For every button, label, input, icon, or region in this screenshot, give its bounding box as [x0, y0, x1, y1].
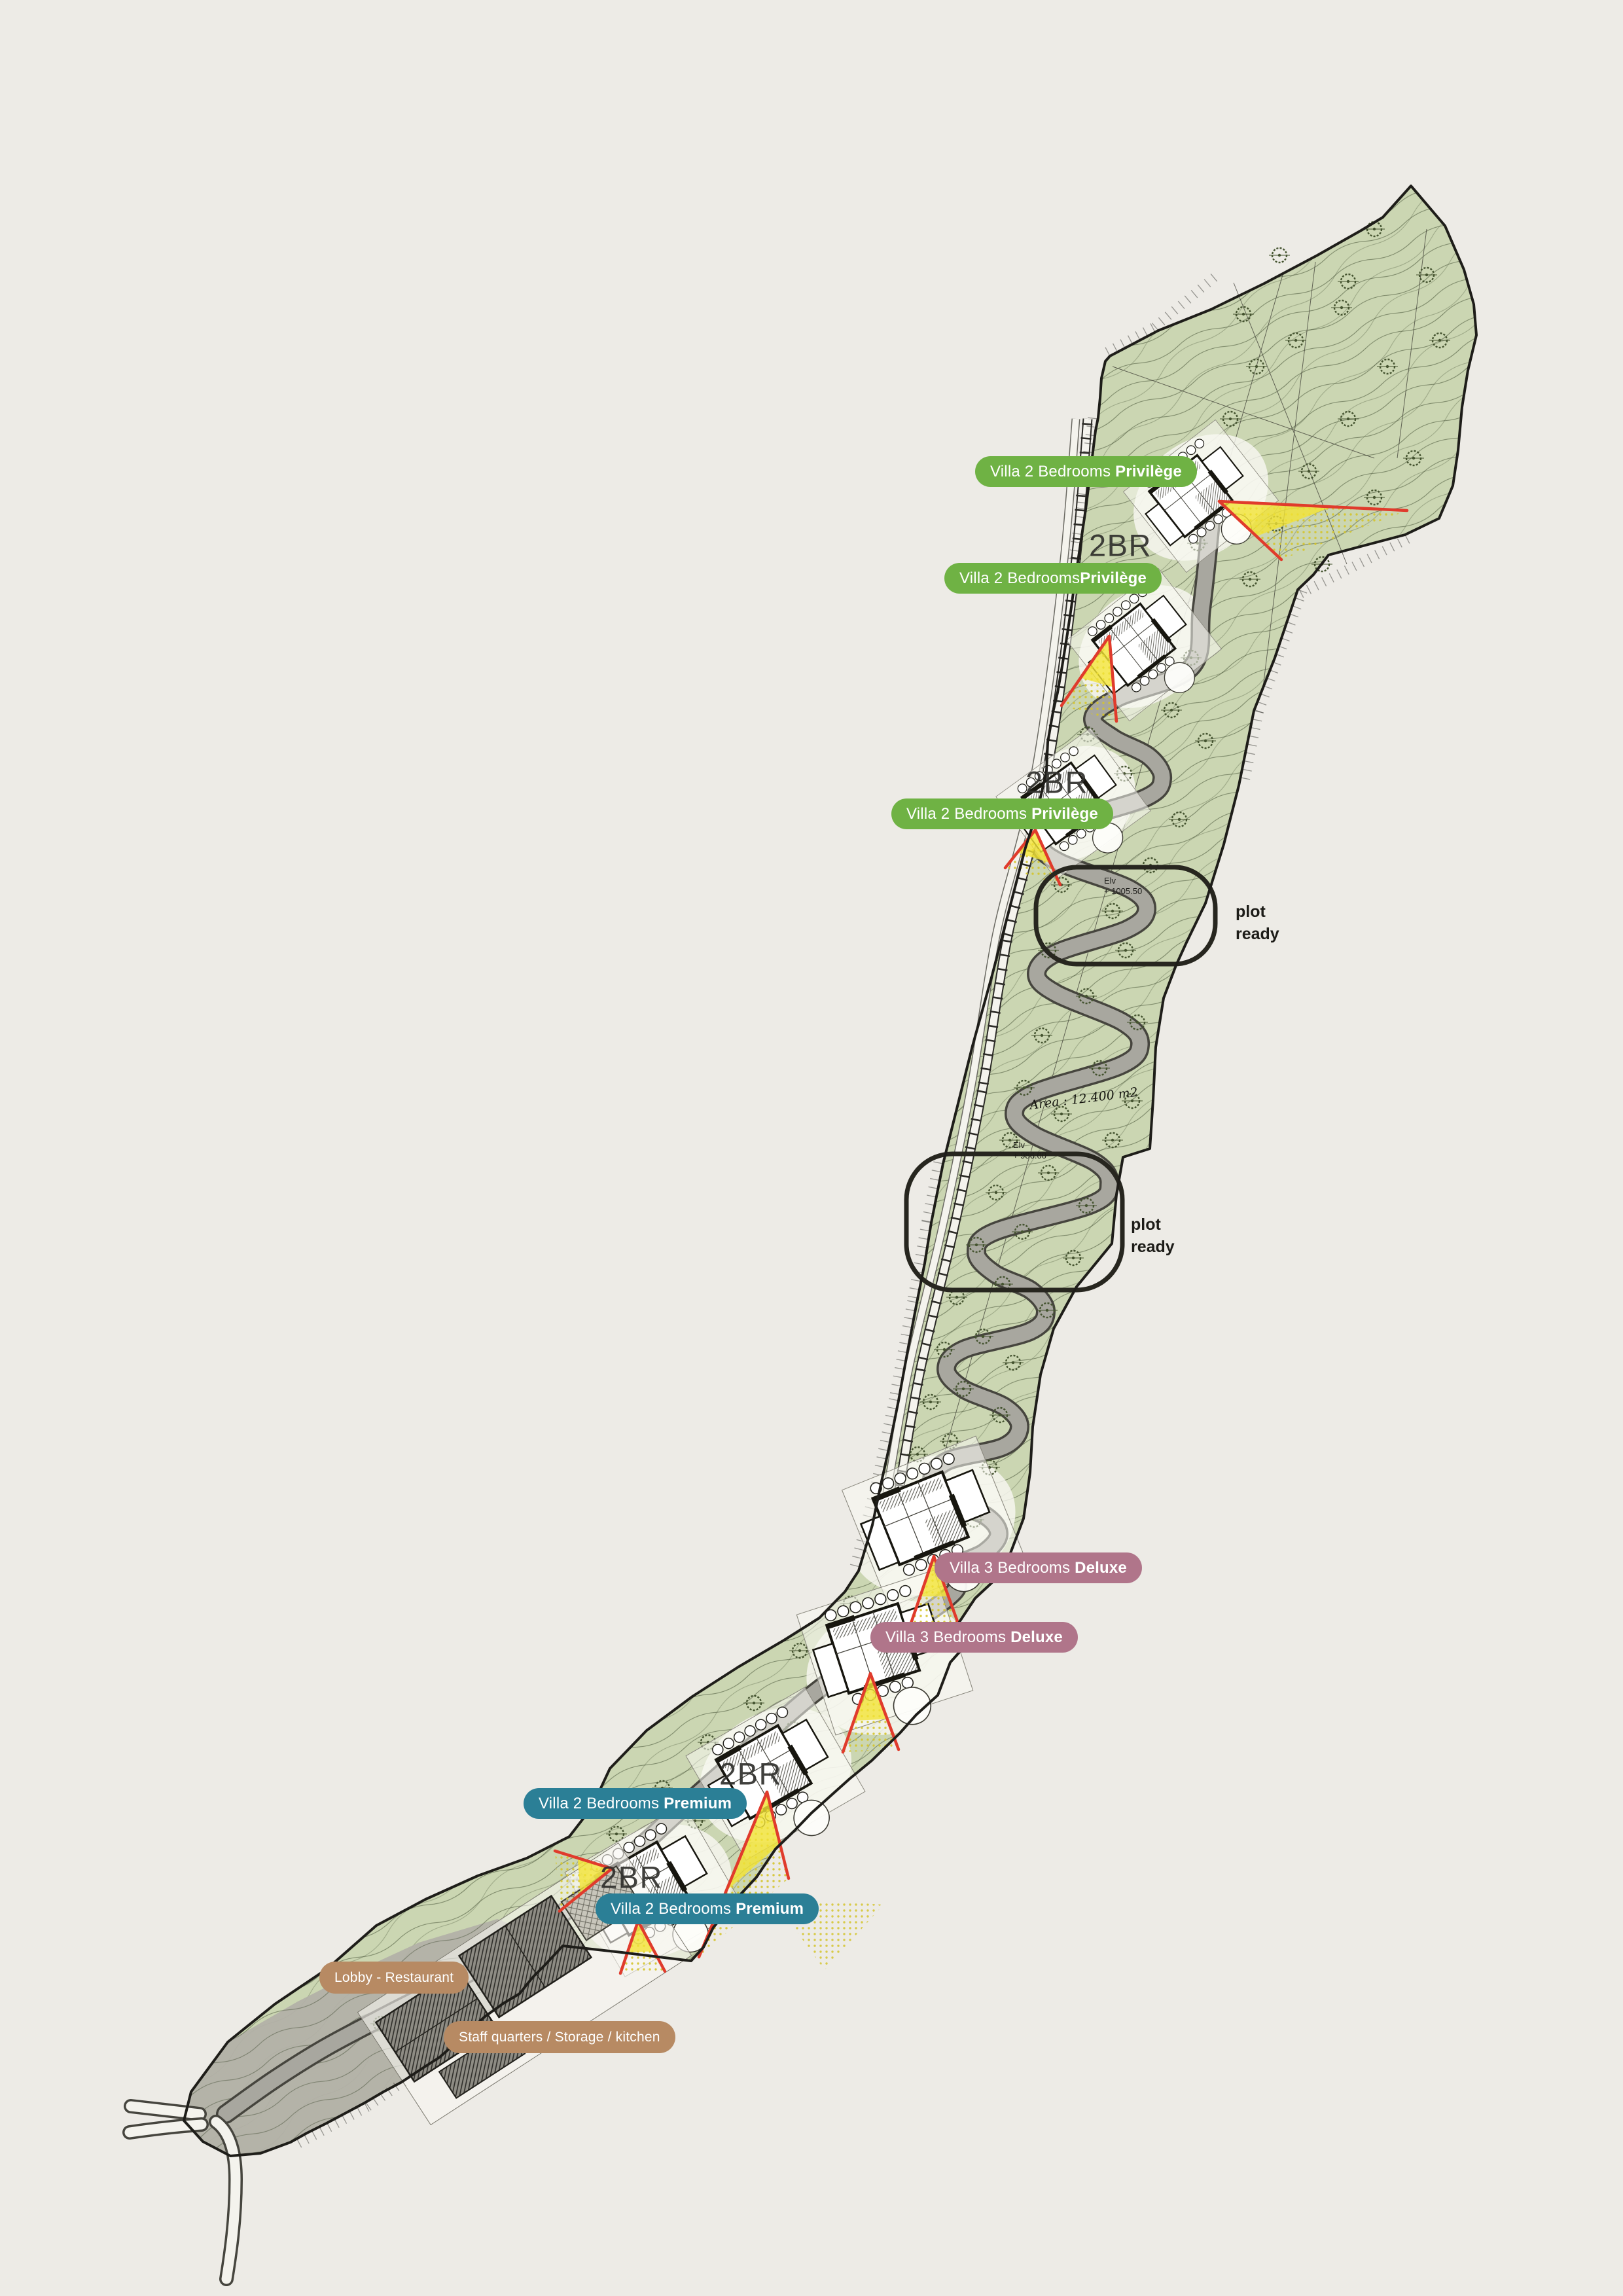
- terrain: [184, 186, 1476, 2156]
- label-text: Villa 3 Bedrooms: [950, 1560, 1075, 1576]
- label-villa-2br-premium-1: Villa 2 Bedrooms Premium: [524, 1788, 747, 1819]
- plot-ready-line: ready: [1236, 924, 1279, 946]
- label-text: Villa 2 Bedrooms: [906, 806, 1031, 822]
- label-villa-2br-privilege-2: Villa 2 BedroomsPrivilège: [944, 563, 1162, 594]
- label-tier: Deluxe: [1075, 1560, 1127, 1576]
- label-staff-quarters: Staff quarters / Storage / kitchen: [444, 2021, 675, 2053]
- unit-tag-2br-3: 2BR: [719, 1756, 782, 1792]
- label-tier: Premium: [664, 1796, 732, 1812]
- label-tier: Privilège: [1031, 806, 1098, 822]
- plot-ready-note-1: plot ready: [1236, 901, 1279, 946]
- plot-ready-note-2: plot ready: [1131, 1214, 1175, 1259]
- label-text: Villa 2 Bedrooms: [611, 1901, 736, 1917]
- label-text: Lobby - Restaurant: [334, 1971, 454, 1984]
- plot-ready-line: ready: [1131, 1236, 1175, 1259]
- label-text: Villa 2 Bedrooms: [959, 571, 1080, 586]
- site-plan: Villa 2 Bedrooms Privilège Villa 2 Bedro…: [0, 0, 1623, 2296]
- plot-ready-line: plot: [1131, 1214, 1175, 1236]
- elevation-value: + 986.00: [1013, 1151, 1046, 1160]
- label-lobby-restaurant: Lobby - Restaurant: [319, 1962, 469, 1994]
- unit-tag-2br-2: 2BR: [1026, 764, 1088, 800]
- label-text: Villa 3 Bedrooms: [885, 1630, 1010, 1645]
- label-villa-2br-privilege-1: Villa 2 Bedrooms Privilège: [975, 456, 1197, 487]
- label-villa-2br-privilege-3: Villa 2 Bedrooms Privilège: [891, 798, 1113, 829]
- plot-ready-line: plot: [1236, 901, 1279, 924]
- label-tier: Privilège: [1080, 571, 1147, 586]
- unit-tag-2br-1: 2BR: [1089, 528, 1152, 564]
- elevation-label: Elv: [1013, 1140, 1025, 1150]
- label-villa-2br-premium-2: Villa 2 Bedrooms Premium: [596, 1893, 819, 1924]
- label-tier: Deluxe: [1010, 1630, 1063, 1645]
- site-plan-drawing: [0, 0, 1623, 2296]
- label-tier: Premium: [736, 1901, 804, 1917]
- unit-tag-2br-4: 2BR: [600, 1859, 663, 1895]
- label-text: Villa 2 Bedrooms: [990, 464, 1115, 480]
- label-text: Staff quarters / Storage / kitchen: [459, 2030, 660, 2044]
- label-villa-3br-deluxe-2: Villa 3 Bedrooms Deluxe: [870, 1622, 1078, 1653]
- elevation-note-2: Elv+ 986.00: [1013, 1140, 1046, 1162]
- elevation-value: + 1005.50: [1104, 886, 1142, 896]
- elevation-label: Elv: [1104, 876, 1116, 886]
- label-tier: Privilège: [1115, 464, 1182, 480]
- elevation-note-1: Elv+ 1005.50: [1104, 876, 1142, 897]
- label-text: Villa 2 Bedrooms: [539, 1796, 664, 1812]
- label-villa-3br-deluxe-1: Villa 3 Bedrooms Deluxe: [935, 1552, 1142, 1583]
